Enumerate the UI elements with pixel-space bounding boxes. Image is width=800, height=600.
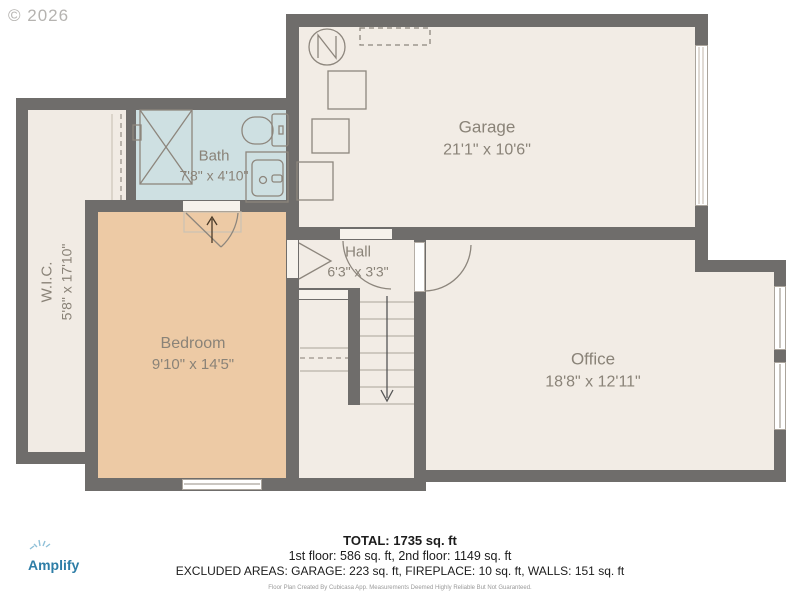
entry-arrow-icon bbox=[207, 217, 217, 243]
window-glass-lines bbox=[184, 288, 780, 484]
office-door-swing bbox=[425, 245, 471, 291]
garage-appliances bbox=[297, 71, 366, 200]
room-dims: 6'3" x 3'3" bbox=[327, 263, 388, 282]
room-dims: 7'8" x 4'10" bbox=[180, 167, 249, 186]
disclaimer-text: Floor Plan Created By Cubicasa App. Meas… bbox=[0, 585, 800, 591]
excluded-areas-text: EXCLUDED AREAS: GARAGE: 223 sq. ft, FIRE… bbox=[0, 564, 800, 578]
garage-door-lines bbox=[699, 47, 703, 204]
room-label-bath: Bath 7'8" x 4'10" bbox=[180, 146, 249, 185]
sunburst-icon bbox=[28, 539, 54, 551]
stairs-down-arrow-icon bbox=[381, 296, 393, 401]
overhead-storage-dashed bbox=[360, 28, 430, 45]
room-dims: 18'8" x 12'11" bbox=[545, 372, 640, 394]
room-dims: 5'8" x 17'10" bbox=[58, 244, 77, 321]
logo-text: Amplify bbox=[28, 557, 79, 573]
room-label-wic: W.I.C. 5'8" x 17'10" bbox=[37, 244, 76, 321]
water-heater-icon bbox=[309, 29, 345, 65]
amplify-logo: Amplify bbox=[28, 538, 79, 573]
room-name: Bedroom bbox=[152, 333, 234, 355]
total-area-text: TOTAL: 1735 sq. ft bbox=[0, 533, 800, 548]
understairs-closet-lines bbox=[300, 348, 348, 371]
footer-summary: TOTAL: 1735 sq. ft 1st floor: 586 sq. ft… bbox=[0, 533, 800, 591]
sink-vanity-fixture bbox=[246, 152, 288, 202]
hall-bedroom-door-swing bbox=[299, 243, 331, 279]
room-name: Hall bbox=[327, 242, 388, 262]
toilet-fixture bbox=[242, 114, 288, 146]
room-label-garage: Garage 21'1" x 10'6" bbox=[443, 117, 531, 162]
room-label-office: Office 18'8" x 12'11" bbox=[545, 349, 640, 394]
wic-closet-lines bbox=[112, 114, 121, 200]
room-name: Office bbox=[545, 349, 640, 372]
copyright-watermark: © 2026 bbox=[8, 6, 69, 26]
fixtures-overlay bbox=[0, 0, 800, 600]
room-name: Garage bbox=[443, 117, 531, 140]
room-dims: 21'1" x 10'6" bbox=[443, 140, 531, 162]
bedroom-door-swing bbox=[184, 212, 241, 247]
room-label-bedroom: Bedroom 9'10" x 14'5" bbox=[152, 333, 234, 375]
room-name: Bath bbox=[180, 146, 249, 166]
stairs bbox=[360, 296, 414, 404]
room-name: W.I.C. bbox=[37, 244, 57, 321]
room-dims: 9'10" x 14'5" bbox=[152, 355, 234, 375]
floorplan-page: © 2026 bbox=[0, 0, 800, 600]
room-label-hall: Hall 6'3" x 3'3" bbox=[327, 242, 388, 281]
floor-areas-text: 1st floor: 586 sq. ft, 2nd floor: 1149 s… bbox=[0, 549, 800, 563]
